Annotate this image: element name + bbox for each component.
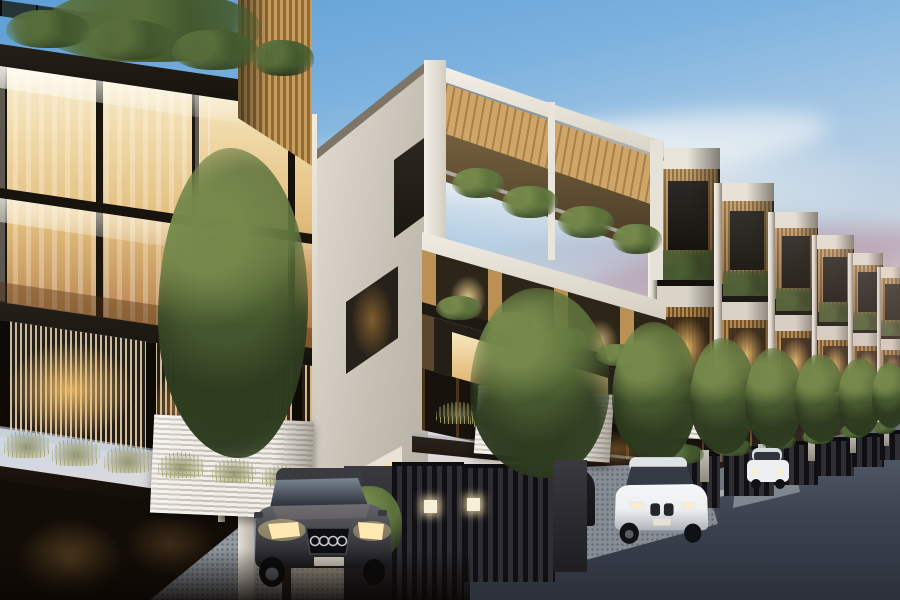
shrub bbox=[452, 168, 504, 198]
suv-headlight bbox=[268, 522, 300, 539]
shrub bbox=[6, 10, 90, 48]
shrub bbox=[612, 224, 662, 254]
pergola-post bbox=[424, 60, 446, 246]
foreground-shadow bbox=[0, 548, 470, 600]
car-glass bbox=[754, 452, 780, 461]
distant-white-car-graphic bbox=[744, 446, 792, 490]
shrub bbox=[502, 186, 558, 218]
car-white-far bbox=[744, 446, 792, 490]
kidney-grille bbox=[664, 503, 674, 516]
suv-windshield bbox=[270, 478, 368, 508]
white-crossover-graphic bbox=[608, 452, 714, 547]
pergola-post bbox=[548, 102, 555, 260]
kidney-grille bbox=[650, 503, 660, 516]
tree-canopy bbox=[470, 288, 610, 478]
tree-canopy bbox=[612, 322, 698, 462]
gate-pillar bbox=[553, 460, 587, 572]
pergola-post bbox=[650, 140, 663, 280]
crossover-white bbox=[608, 452, 714, 547]
shrub bbox=[252, 40, 314, 76]
tree-canopy bbox=[872, 362, 900, 428]
car-headlight bbox=[632, 503, 642, 508]
grass-tuft bbox=[158, 452, 204, 478]
car-wheel bbox=[684, 524, 701, 543]
grass-tuft bbox=[52, 438, 100, 466]
grass-tuft bbox=[4, 430, 50, 458]
gate-bars bbox=[880, 430, 900, 460]
license-plate bbox=[653, 519, 670, 526]
intercom-light bbox=[467, 498, 480, 511]
shrub bbox=[172, 30, 258, 70]
gate-bars bbox=[463, 464, 555, 582]
grass-tuft bbox=[104, 445, 152, 473]
shrub bbox=[86, 20, 176, 60]
townhouse-street-rendering bbox=[0, 0, 900, 600]
suv-headlight bbox=[358, 522, 384, 540]
intercom-light bbox=[424, 500, 437, 513]
shrub bbox=[558, 206, 614, 238]
car-headlight bbox=[684, 503, 693, 508]
tree-canopy bbox=[158, 148, 308, 458]
shrub bbox=[436, 296, 482, 320]
